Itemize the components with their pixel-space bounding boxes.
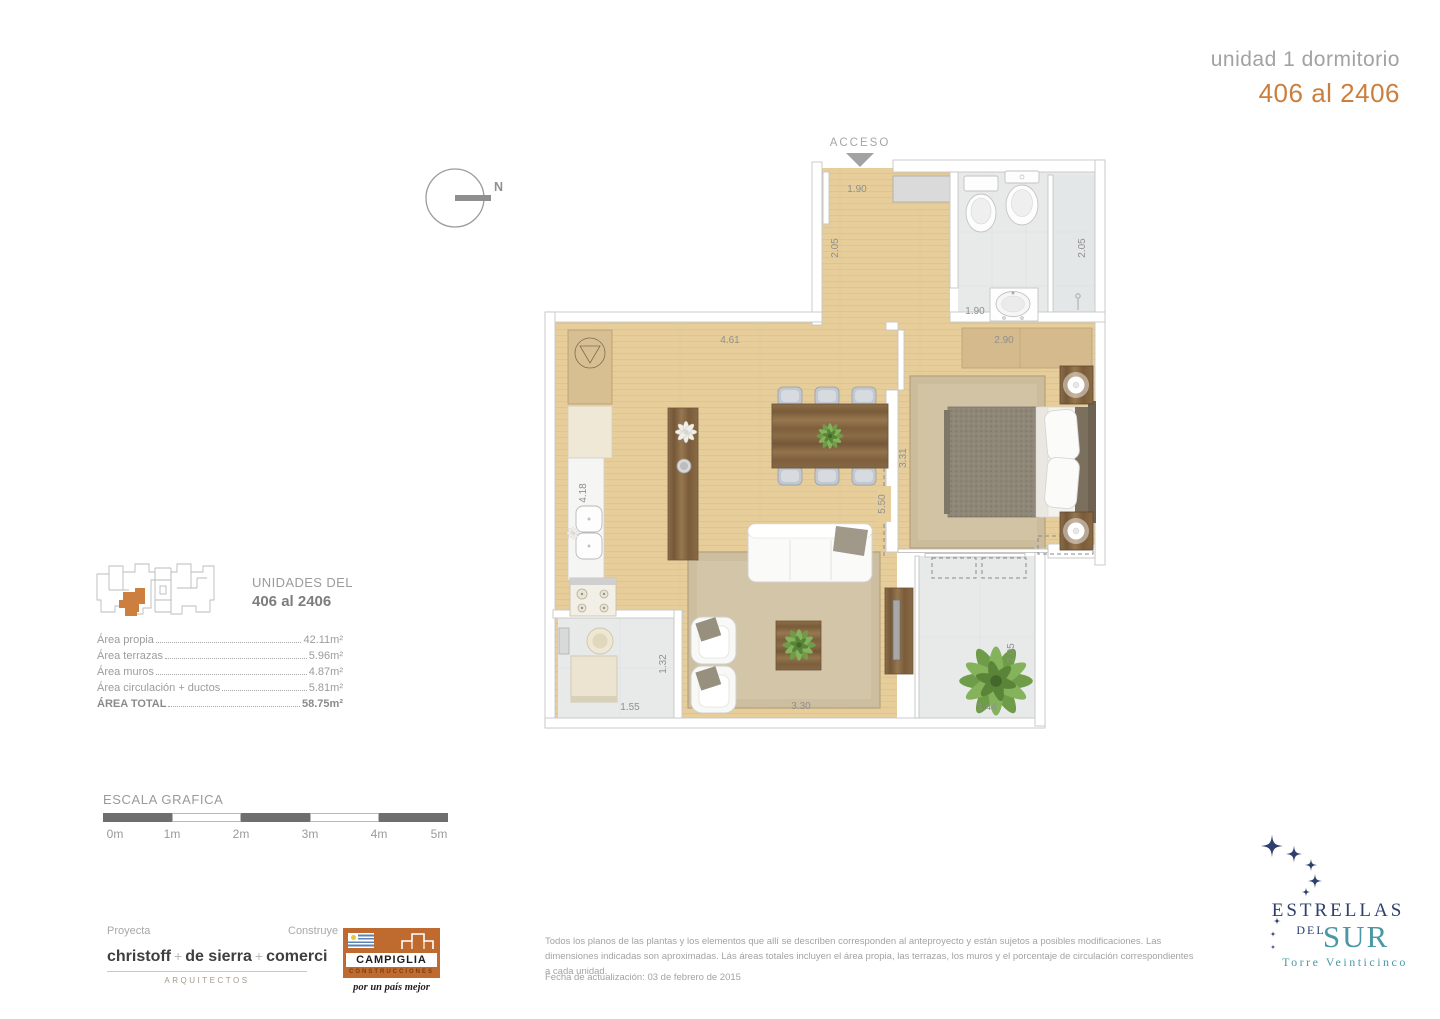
campiglia-name-band: CAMPIGLIA xyxy=(346,953,437,967)
sofa-throw xyxy=(833,526,868,556)
stove-panel xyxy=(570,578,616,585)
kitchen-cabinet xyxy=(568,330,612,404)
wall-bath-divider xyxy=(1048,175,1053,318)
north-compass: N xyxy=(420,160,515,242)
architect-name-part: comerci xyxy=(266,948,327,965)
architects-name: christoff+de sierra+comerci xyxy=(107,948,307,966)
building-outline xyxy=(97,564,214,614)
living-terrace-glass xyxy=(915,556,919,718)
dim-terrace-width: 1.44 xyxy=(977,702,997,713)
island-flower xyxy=(675,421,697,443)
lamp-icon xyxy=(1073,528,1079,534)
laundry-basin-inner xyxy=(593,634,608,649)
star-icon xyxy=(1308,874,1322,888)
building-key-plan xyxy=(93,556,218,620)
compass-needle-icon xyxy=(455,195,491,201)
header-block: unidad 1 dormitorio 406 al 2406 xyxy=(1211,48,1400,109)
headboard xyxy=(1088,401,1096,523)
floor-plan: ACCESO 1.90 2.05 2.05 1.90 2.90 4.61 4.1… xyxy=(530,130,1130,745)
unit-type-subtitle: unidad 1 dormitorio xyxy=(1211,48,1400,72)
brochure-page: unidad 1 dormitorio 406 al 2406 N xyxy=(0,0,1440,1019)
dim-bedroom-depth: 3.31 xyxy=(898,448,909,468)
campiglia-logo: CAMPIGLIA CONSTRUCCIONES por un país mej… xyxy=(343,928,443,993)
star-icon xyxy=(1261,835,1284,858)
dim-shower-depth: 2.05 xyxy=(1077,238,1088,258)
dot-leader xyxy=(156,642,302,643)
shower-floor xyxy=(1053,175,1095,318)
architects-divider xyxy=(107,971,307,972)
unit-highlight xyxy=(119,588,145,616)
scale-bar xyxy=(103,813,448,822)
plus-separator: + xyxy=(252,948,266,964)
update-date: Fecha de actualización: 03 de febrero de… xyxy=(545,972,741,983)
dim-kitchen-depth: 4.18 xyxy=(578,483,589,503)
nightstand xyxy=(1060,366,1093,404)
acceso-label: ACCESO xyxy=(830,137,891,149)
entry-closet xyxy=(893,176,957,202)
area-row: Área terrazas 5.96m² xyxy=(97,646,343,662)
dim-living-width: 4.61 xyxy=(720,335,740,346)
dim-laundry-width: 1.55 xyxy=(620,702,640,713)
dim-bath-width: 1.90 xyxy=(965,306,985,317)
campiglia-box: CAMPIGLIA CONSTRUCCIONES xyxy=(343,928,440,978)
scale-title: ESCALA GRAFICA xyxy=(103,792,449,807)
flag-canton xyxy=(348,933,358,941)
armchair xyxy=(691,666,736,713)
unit-range-title: 406 al 2406 xyxy=(1211,78,1400,109)
star-icon xyxy=(1270,931,1276,937)
architect-name-part: christoff xyxy=(107,948,171,965)
north-label: N xyxy=(494,180,503,194)
bedroom-window xyxy=(898,549,1048,553)
washing-machine xyxy=(571,656,617,702)
dim-living-depth: 5.50 xyxy=(877,494,888,514)
architect-name-part: de sierra xyxy=(185,948,252,965)
scale-segment xyxy=(103,813,172,822)
nightstand xyxy=(1060,512,1093,550)
armchair xyxy=(691,617,736,664)
dim-laundry-depth: 1.32 xyxy=(658,654,669,674)
dot-leader xyxy=(168,706,300,707)
dot-leader xyxy=(156,674,307,675)
uruguay-flag-icon xyxy=(348,933,374,948)
area-value: 5.81m² xyxy=(309,682,343,694)
wall-right xyxy=(1095,160,1105,565)
pillow xyxy=(1044,457,1080,510)
brand-line2: DEL xyxy=(1296,923,1325,937)
brand-line4: Torre Veinticinco xyxy=(1282,955,1408,969)
scale-tick-label: 5m xyxy=(431,827,448,841)
acceso-arrow-icon xyxy=(846,153,874,167)
scale-segment xyxy=(172,813,241,822)
wall-left xyxy=(545,312,555,728)
brand-line1: ESTRELLAS xyxy=(1272,900,1405,921)
builder-subtitle: CONSTRUCCIONES xyxy=(346,969,437,975)
brand-logo: ESTRELLAS DEL SUR Torre Veinticinco xyxy=(1240,826,1425,974)
area-label: Área circulación + ductos xyxy=(97,682,220,694)
area-label: Área propia xyxy=(97,634,154,646)
terrace-railing xyxy=(1035,548,1045,726)
bathroom-sink xyxy=(990,288,1038,321)
area-value: 42.11m² xyxy=(303,634,343,646)
wall-corridor-bath xyxy=(950,172,958,288)
area-label: Área muros xyxy=(97,666,154,678)
toilet xyxy=(964,176,998,232)
building-blocks-icon xyxy=(400,931,436,951)
builder-tagline: por un país mejor xyxy=(343,982,440,993)
area-row-total: ÁREA TOTAL 58.75m² xyxy=(97,694,343,710)
star-icon xyxy=(1302,888,1311,897)
island-bowl-inner xyxy=(680,462,688,470)
bedroom-door-leaf xyxy=(898,330,904,390)
area-label: ÁREA TOTAL xyxy=(97,698,166,710)
pillow xyxy=(1044,409,1080,462)
area-row: Área propia 42.11m² xyxy=(97,630,343,646)
wardrobe xyxy=(962,328,1092,368)
bed-duvet xyxy=(948,407,1038,517)
scale-tick-label: 0m xyxy=(107,827,124,841)
flag-sun-icon xyxy=(351,935,356,940)
bedroom-window-pane xyxy=(925,554,1025,558)
dim-terrace-depth: 2.05 xyxy=(1006,643,1017,663)
lamp-icon xyxy=(1073,382,1079,388)
wall-laundry-right xyxy=(674,610,682,718)
scale-segment xyxy=(241,813,310,822)
sink-drain xyxy=(588,545,591,548)
unidades-line1: UNIDADES DEL xyxy=(252,575,353,590)
area-value: 58.75m² xyxy=(302,698,343,710)
architects-subtitle: ARQUITECTOS xyxy=(107,976,307,985)
dim-entry-depth: 2.05 xyxy=(830,238,841,258)
area-table: Área propia 42.11m² Área terrazas 5.96m²… xyxy=(97,630,343,710)
scale-labels: 0m 1m 2m 3m 4m 5m xyxy=(103,827,449,841)
builder-name: CAMPIGLIA xyxy=(356,954,427,966)
dim-entry-width: 1.90 xyxy=(847,184,867,195)
scale-tick-label: 3m xyxy=(302,827,319,841)
star-icon xyxy=(1270,944,1275,949)
wall-top xyxy=(893,160,1105,172)
scale-tick-label: 4m xyxy=(371,827,388,841)
dot-leader xyxy=(222,690,307,691)
dim-living-bottom-width: 3.30 xyxy=(791,701,811,712)
star-icon xyxy=(1305,859,1317,871)
bidet xyxy=(1005,171,1039,225)
construye-label: Construye xyxy=(288,925,338,937)
dim-bedroom-width: 2.90 xyxy=(994,335,1014,346)
unidades-line2: 406 al 2406 xyxy=(252,593,353,610)
entry-door-leaf xyxy=(823,172,829,224)
area-value: 5.96m² xyxy=(309,650,343,662)
tv-screen xyxy=(893,600,900,660)
area-row: Área muros 4.87m² xyxy=(97,662,343,678)
scale-block: ESCALA GRAFICA 0m 1m 2m 3m 4m 5m xyxy=(103,792,449,841)
unidades-block: UNIDADES DEL 406 al 2406 xyxy=(252,575,353,610)
wall-bottom xyxy=(545,718,1045,728)
area-value: 4.87m² xyxy=(309,666,343,678)
area-label: Área terrazas xyxy=(97,650,163,662)
area-row: Área circulación + ductos 5.81m² xyxy=(97,678,343,694)
plus-separator: + xyxy=(171,948,185,964)
scale-segment xyxy=(310,813,379,822)
brand-line3: SUR xyxy=(1323,919,1389,954)
architects-block: christoff+de sierra+comerci ARQUITECTOS xyxy=(107,948,307,985)
star-icon xyxy=(1286,846,1303,863)
bed-duvet-drape xyxy=(944,410,950,514)
fridge xyxy=(568,406,612,458)
sink-drain xyxy=(588,518,591,521)
bedroom xyxy=(944,328,1096,550)
wall-bedroom-stub xyxy=(886,322,898,330)
scale-tick-label: 2m xyxy=(233,827,250,841)
sink-faucet-plant xyxy=(567,527,580,540)
wall-living-top xyxy=(545,312,822,322)
proyecta-label: Proyecta xyxy=(107,925,150,937)
laundry-door xyxy=(559,628,569,654)
dot-leader xyxy=(165,658,307,659)
scale-tick-label: 1m xyxy=(164,827,181,841)
scale-segment xyxy=(379,813,448,822)
wall-corridor-left xyxy=(812,162,822,325)
washing-machine-edge xyxy=(571,696,617,702)
